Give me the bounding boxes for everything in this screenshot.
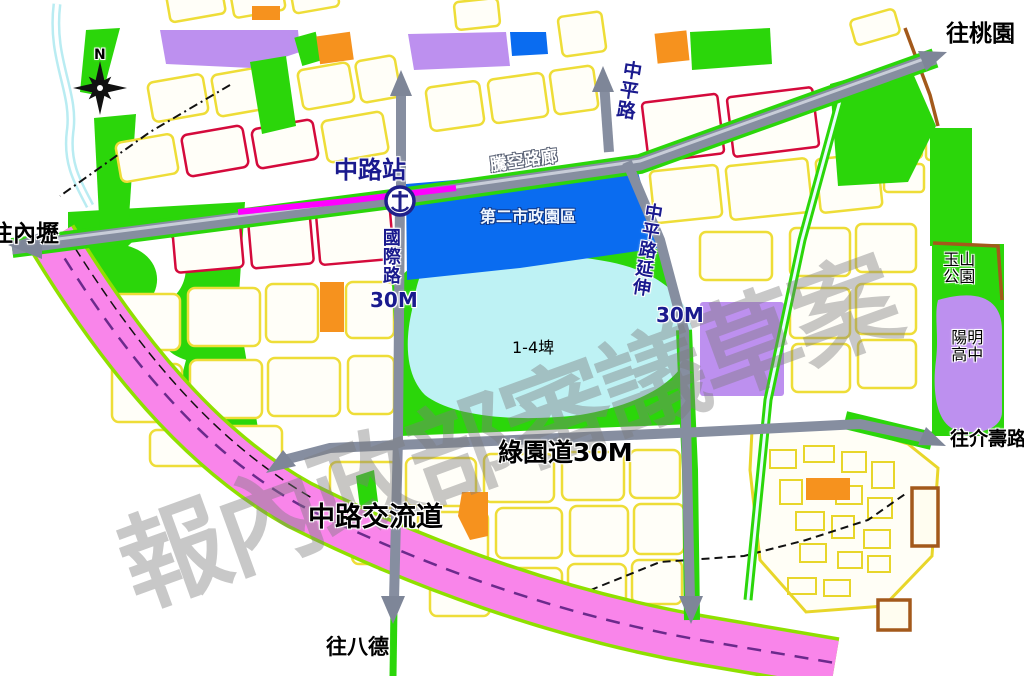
plan-map-canvas: 報內政部審議草案 N 往桃園 往內壢 往介壽路 往八德 中路站 騰空路廊 第二市… — [0, 0, 1024, 676]
compass-rose-icon — [73, 61, 127, 115]
interchange-label: 中路交流道 — [308, 504, 443, 532]
zhongping-road — [604, 82, 609, 152]
market-zone-se — [806, 478, 850, 500]
market-zone-n — [316, 32, 354, 64]
railway-station-icon — [386, 187, 414, 215]
direction-bade: 往八德 — [326, 636, 389, 658]
brown-parcel — [912, 488, 938, 546]
yangming-high-label: 陽明高中 — [950, 330, 984, 364]
yushan-park-label: 玉山公園 — [942, 252, 976, 286]
school-zone-n — [408, 32, 510, 70]
market-zone-w — [320, 282, 344, 332]
direction-neili: 往內壢 — [0, 222, 59, 246]
direction-taoyuan: 往桃園 — [946, 22, 1015, 46]
direction-jieshou: 往介壽路 — [950, 430, 1024, 450]
guoji-width-label: 30M — [370, 290, 418, 311]
pond-label: 1-4埤 — [512, 340, 554, 357]
green-parkway-label: 綠園道30M — [498, 440, 633, 466]
civic-district-label: 第二市政園區 — [480, 209, 576, 226]
compass-north-label: N — [94, 48, 106, 63]
river — [56, 4, 90, 206]
brown-parcel — [878, 600, 910, 630]
guoji-road-label: 國際路 — [380, 228, 399, 285]
station-label: 中路站 — [334, 158, 406, 183]
zhongping-ext-width-label: 30M — [656, 305, 704, 326]
